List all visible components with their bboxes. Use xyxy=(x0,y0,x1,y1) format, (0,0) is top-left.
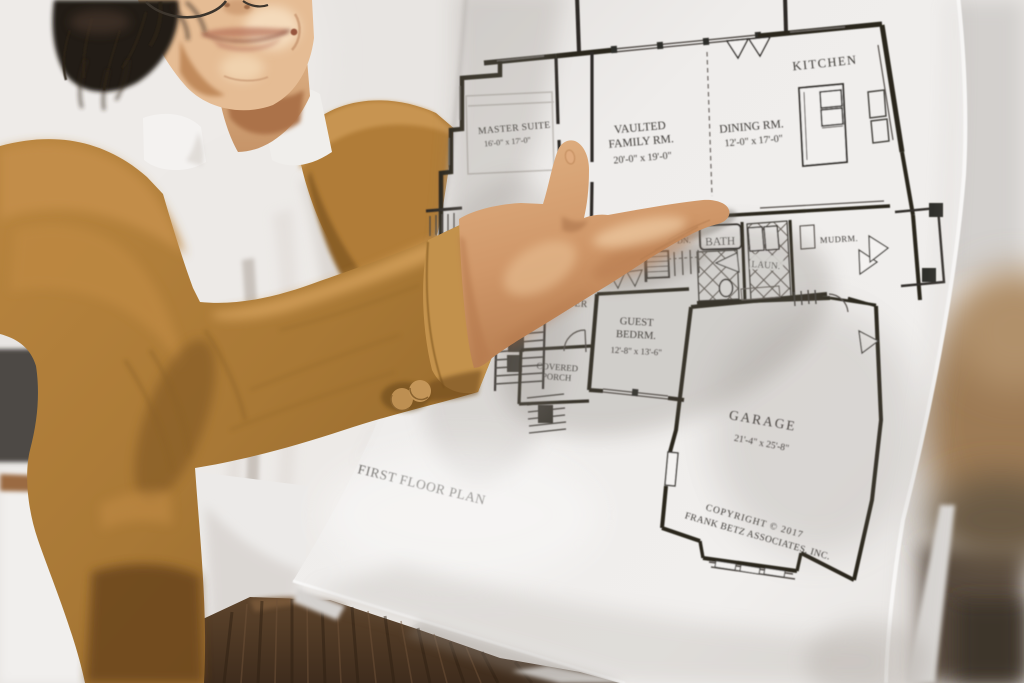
svg-text:MUDRM.: MUDRM. xyxy=(820,233,859,245)
